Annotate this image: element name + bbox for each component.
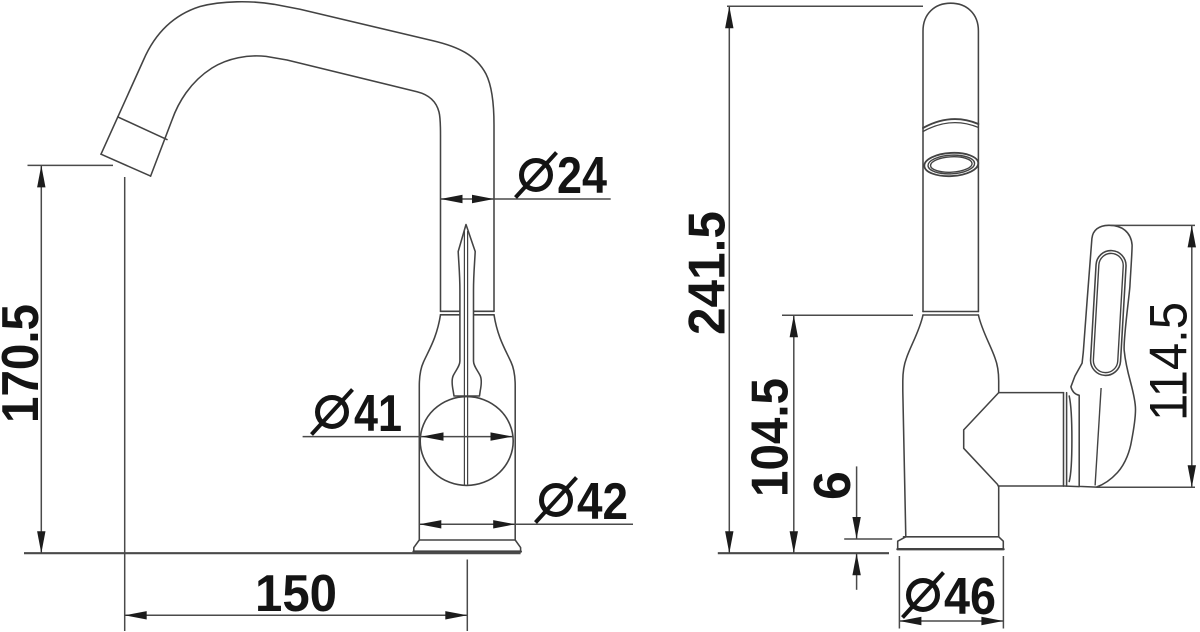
- svg-text:41: 41: [354, 385, 402, 443]
- svg-text:114.5: 114.5: [1140, 302, 1199, 421]
- svg-text:6: 6: [804, 471, 862, 500]
- svg-text:24: 24: [557, 147, 607, 205]
- svg-text:241.5: 241.5: [678, 211, 736, 335]
- svg-text:150: 150: [255, 565, 337, 623]
- svg-text:104.5: 104.5: [742, 378, 800, 497]
- svg-text:42: 42: [577, 473, 628, 531]
- svg-text:46: 46: [944, 568, 996, 626]
- svg-text:170.5: 170.5: [0, 304, 50, 423]
